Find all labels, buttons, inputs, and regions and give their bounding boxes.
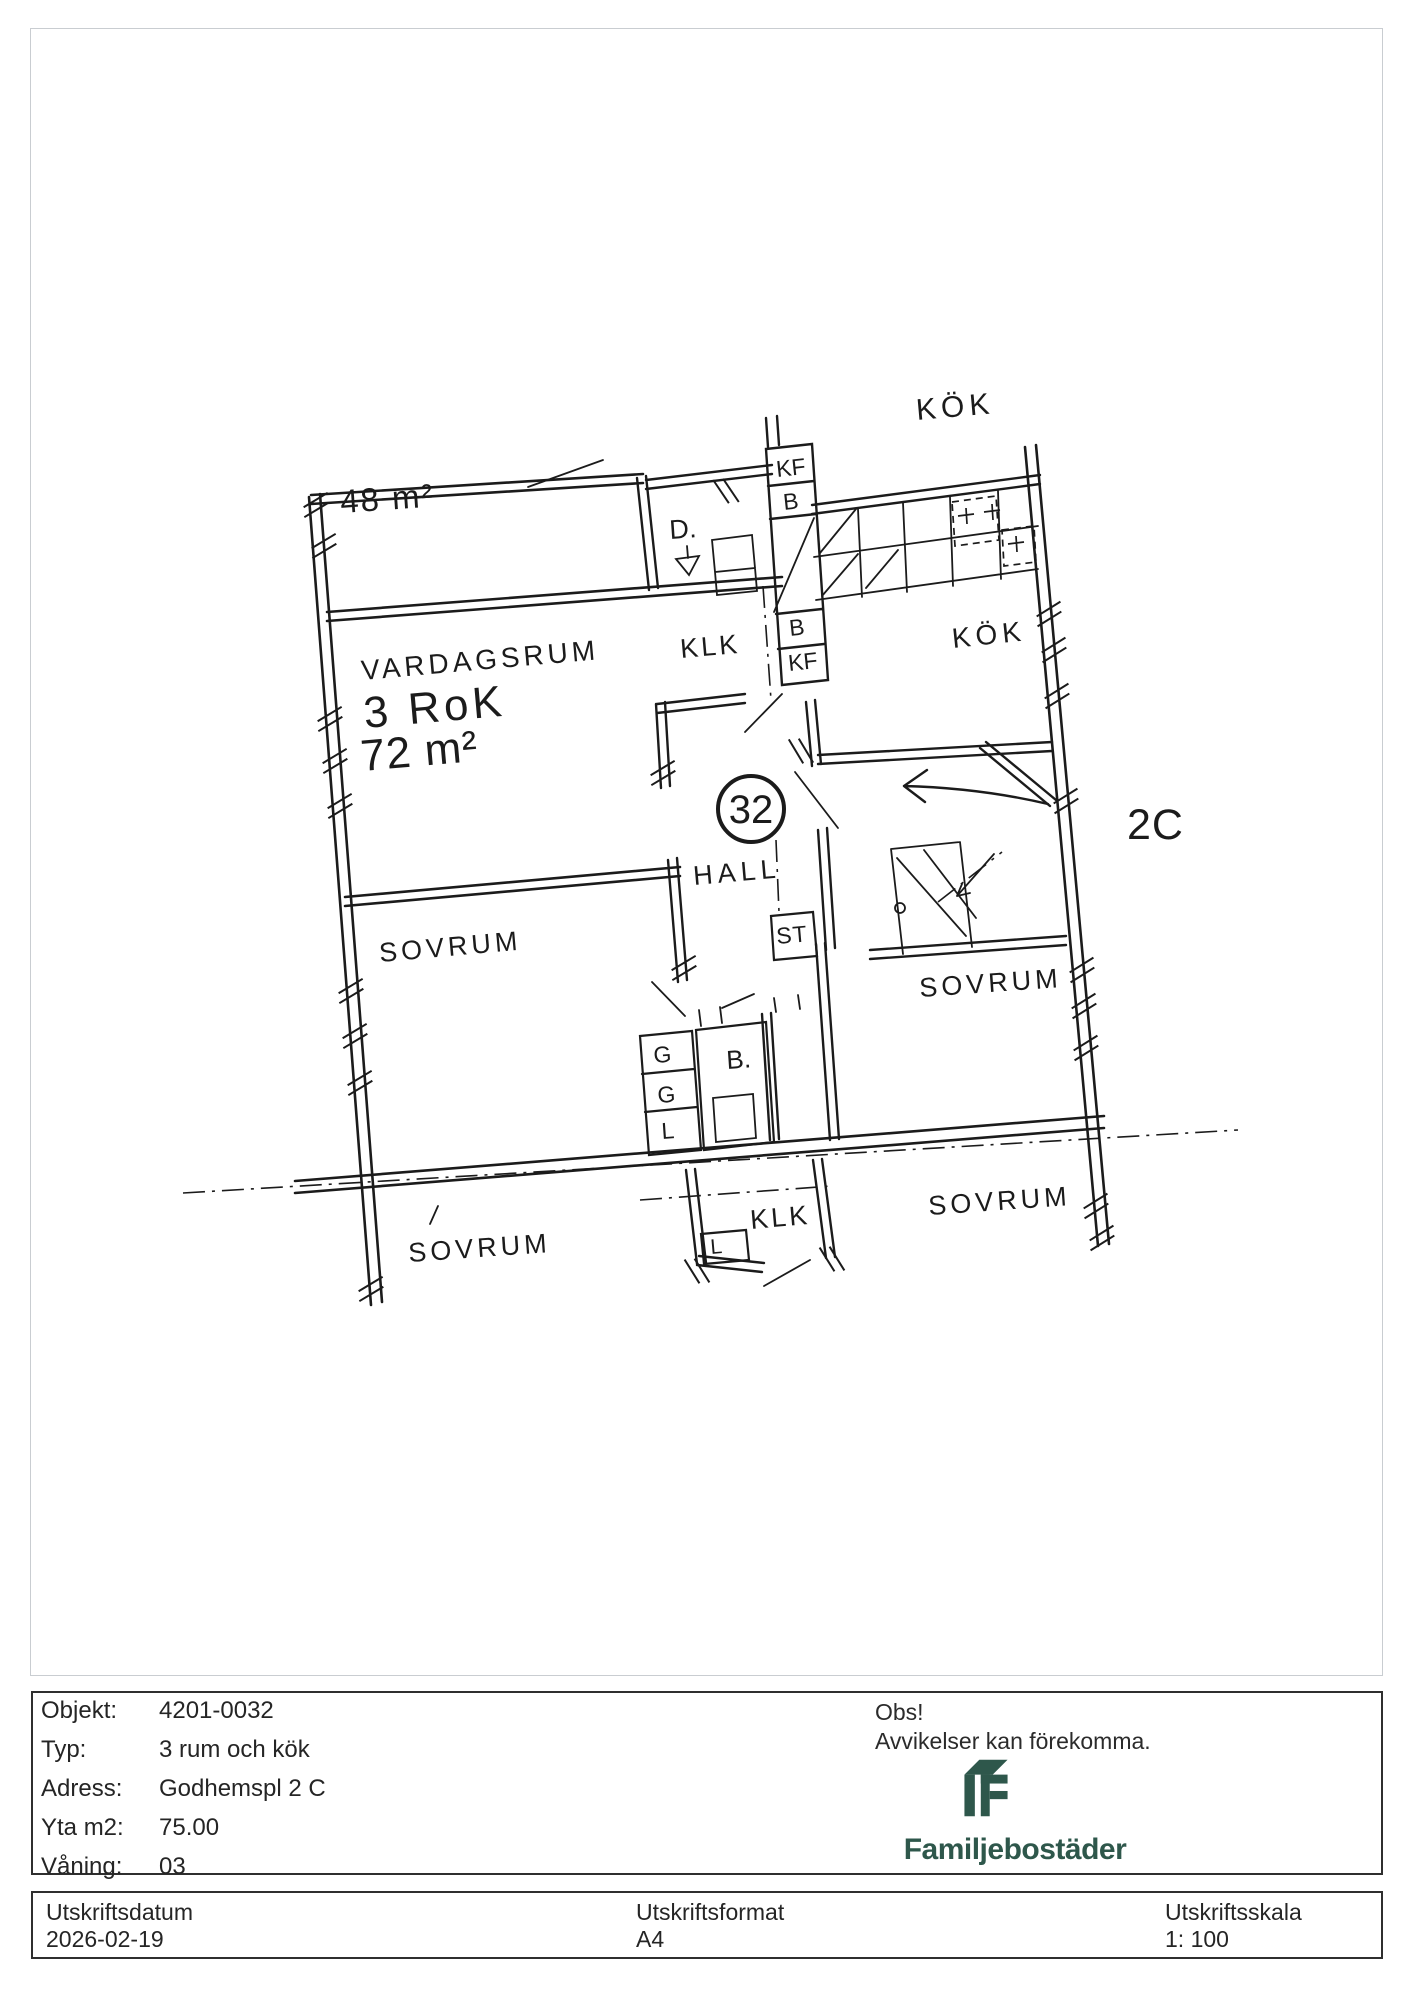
notice-text: Avvikelser kan förekomma. — [875, 1727, 1151, 1756]
adress-value: Godhemspl 2 C — [159, 1777, 326, 1801]
brand-wordmark: Familjebostäder — [855, 1833, 1175, 1867]
adress-label: Adress: — [41, 1777, 122, 1801]
yta-value: 75.00 — [159, 1816, 219, 1840]
typ-value: 3 rum och kök — [159, 1738, 310, 1762]
vaning-label: Våning: — [41, 1855, 122, 1879]
print-format-value: A4 — [636, 1928, 664, 1951]
property-info-box: Objekt: 4201-0032 Typ: 3 rum och kök Adr… — [31, 1691, 1383, 1875]
objekt-label: Objekt: — [41, 1699, 117, 1723]
vaning-value: 03 — [159, 1855, 186, 1879]
print-format-label: Utskriftsformat — [636, 1901, 784, 1924]
print-info-bar: Utskriftsdatum 2026-02-19 Utskriftsforma… — [31, 1891, 1383, 1959]
print-scale-label: Utskriftsskala — [1165, 1901, 1302, 1924]
print-date-value: 2026-02-19 — [46, 1928, 164, 1951]
print-date-label: Utskriftsdatum — [46, 1901, 193, 1924]
yta-label: Yta m2: — [41, 1816, 124, 1840]
notice: Obs! Avvikelser kan förekomma. — [875, 1698, 1151, 1756]
familjebostader-logo-icon — [957, 1753, 1015, 1823]
print-scale-value: 1: 100 — [1165, 1928, 1229, 1951]
typ-label: Typ: — [41, 1738, 86, 1762]
objekt-value: 4201-0032 — [159, 1699, 274, 1723]
plan-area-border — [30, 28, 1383, 1676]
floorplan-document: KÖK 48 m² VARDAGSRUM 3 RoK 72 m² D. KLK … — [0, 0, 1413, 2000]
notice-title: Obs! — [875, 1698, 1151, 1727]
